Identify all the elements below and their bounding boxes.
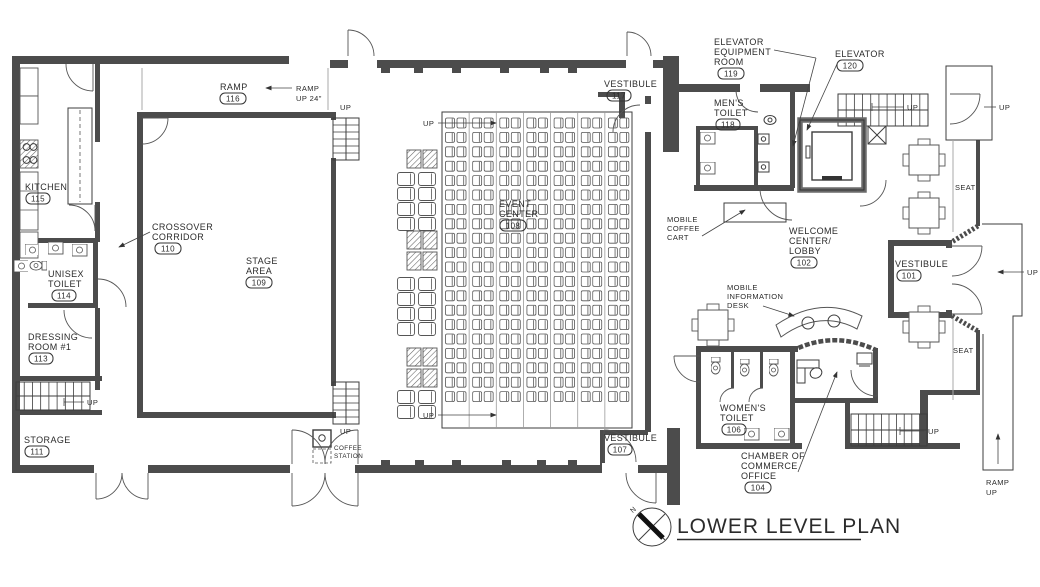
room-label-stage-area: STAGE AREA 109: [246, 256, 278, 288]
chair: [554, 233, 563, 243]
chair: [566, 348, 575, 358]
chair: [566, 262, 575, 272]
chair: [500, 233, 509, 243]
svg-text:CENTER/: CENTER/: [789, 236, 831, 246]
chair: [581, 320, 590, 330]
chair: [538, 363, 547, 373]
svg-text:UP: UP: [986, 488, 997, 497]
accessible-seat: [407, 252, 421, 270]
chair: [484, 348, 493, 358]
chair: [620, 276, 629, 286]
chair: [620, 305, 629, 315]
svg-text:DESK: DESK: [727, 301, 749, 310]
chair: [538, 248, 547, 258]
chair: [446, 320, 455, 330]
chair: [554, 147, 563, 157]
chair: [527, 320, 536, 330]
pilaster: [381, 68, 390, 73]
chair: [500, 147, 509, 157]
svg-text:STATION: STATION: [334, 453, 363, 460]
chair: [554, 262, 563, 272]
elevator-shaft: [800, 120, 886, 190]
up-label: UP: [907, 103, 918, 112]
chair: [566, 190, 575, 200]
chair: [511, 118, 520, 128]
chair: [500, 348, 509, 358]
chair: [457, 132, 466, 142]
chair: [446, 233, 455, 243]
svg-text:101: 101: [902, 272, 917, 281]
chair: [538, 392, 547, 402]
chair: [608, 334, 617, 344]
plan-title: LOWER LEVEL PLAN: [677, 515, 901, 538]
chair: [554, 219, 563, 229]
chair: [446, 377, 455, 387]
chair: [500, 276, 509, 286]
chair: [608, 132, 617, 142]
chair: [527, 363, 536, 373]
chair: [566, 334, 575, 344]
up-label: UP: [423, 119, 434, 128]
chair: [500, 320, 509, 330]
chair: [527, 291, 536, 301]
accessible-seat: [407, 369, 421, 387]
chair: [554, 118, 563, 128]
svg-text:ELEVATOR: ELEVATOR: [714, 37, 764, 47]
chair: [538, 320, 547, 330]
chair: [538, 305, 547, 315]
kitchen-counter: [20, 68, 38, 96]
chair: [581, 334, 590, 344]
chair: [608, 233, 617, 243]
armchair: [398, 188, 415, 201]
room-label-ramp: RAMP 116: [220, 82, 248, 104]
svg-text:EQUIPMENT: EQUIPMENT: [714, 47, 771, 57]
chair: [608, 305, 617, 315]
chair: [554, 161, 563, 171]
chair: [581, 233, 590, 243]
room-label-chamber-office: CHAMBER OF COMMERCE OFFICE 104: [741, 451, 805, 493]
chair: [457, 147, 466, 157]
chair: [511, 334, 520, 344]
chair: [593, 320, 602, 330]
seat-label: SEAT: [953, 346, 974, 355]
svg-text:TOILET: TOILET: [720, 413, 754, 423]
chair: [608, 276, 617, 286]
chair: [484, 377, 493, 387]
mobile-coffee-cart-label: MOBILE COFFEE CART: [667, 215, 700, 242]
svg-text:EVENT: EVENT: [499, 199, 531, 209]
chair: [581, 291, 590, 301]
armchair: [419, 323, 436, 336]
chair: [457, 176, 466, 186]
chair: [511, 392, 520, 402]
chair: [554, 334, 563, 344]
chair: [527, 176, 536, 186]
armchair: [419, 218, 436, 231]
chair: [554, 348, 563, 358]
chair: [608, 219, 617, 229]
chair: [593, 262, 602, 272]
chair: [527, 233, 536, 243]
up-label: UP: [999, 103, 1010, 112]
chair: [446, 262, 455, 272]
chair: [473, 161, 482, 171]
chair: [500, 176, 509, 186]
unisex-toilet-fixture: [30, 261, 47, 270]
chair: [566, 204, 575, 214]
chair: [457, 248, 466, 258]
room-label-welcome-center: WELCOME CENTER/ LOBBY 102: [789, 226, 838, 268]
svg-text:TOILET: TOILET: [714, 108, 748, 118]
chair: [581, 248, 590, 258]
chair: [593, 161, 602, 171]
doors: [64, 30, 982, 506]
svg-text:120: 120: [843, 62, 858, 71]
chair: [527, 392, 536, 402]
chair: [527, 334, 536, 344]
chair: [581, 377, 590, 387]
chair: [620, 190, 629, 200]
chair: [500, 392, 509, 402]
up-label: UP: [423, 411, 434, 420]
chair: [620, 118, 629, 128]
chair: [511, 132, 520, 142]
armchair: [398, 406, 415, 419]
chair: [500, 305, 509, 315]
svg-text:MOBILE: MOBILE: [667, 215, 698, 224]
up-label: UP: [1027, 268, 1038, 277]
chair: [593, 305, 602, 315]
chair: [608, 176, 617, 186]
coffee-station-fixture: [313, 430, 331, 463]
chair: [473, 334, 482, 344]
room-label-storage: STORAGE 111: [24, 435, 71, 457]
svg-text:COFFEE: COFFEE: [667, 224, 700, 233]
elevator-cab: [812, 132, 852, 180]
chair: [608, 204, 617, 214]
chair: [484, 132, 493, 142]
chair: [608, 320, 617, 330]
svg-text:104: 104: [751, 484, 766, 493]
svg-text:VESTIBULE: VESTIBULE: [604, 79, 657, 89]
up-label: UP: [340, 103, 351, 112]
svg-text:RAMP: RAMP: [220, 82, 248, 92]
accessible-seat: [407, 231, 421, 249]
chair: [457, 363, 466, 373]
chair: [511, 291, 520, 301]
floor-plan-page: RAMP 116 RAMP UP 24" KITCHEN 115 CROSSOV…: [0, 0, 1040, 587]
chair: [608, 348, 617, 358]
chair: [457, 334, 466, 344]
chair: [446, 248, 455, 258]
chair: [511, 161, 520, 171]
chair: [527, 377, 536, 387]
chair: [473, 305, 482, 315]
chair: [446, 291, 455, 301]
north-letter: N: [629, 506, 638, 515]
svg-text:117: 117: [612, 92, 626, 101]
chair: [581, 147, 590, 157]
chair: [511, 305, 520, 315]
svg-text:KITCHEN: KITCHEN: [25, 182, 67, 192]
room-label-crossover-corridor: CROSSOVER CORRIDOR 110: [152, 222, 213, 254]
chair: [620, 377, 629, 387]
event-center-seating: [398, 112, 633, 428]
chair: [500, 291, 509, 301]
pilaster: [568, 460, 577, 465]
chair: [484, 248, 493, 258]
chair: [566, 147, 575, 157]
chair: [593, 147, 602, 157]
chair: [511, 176, 520, 186]
chair: [581, 176, 590, 186]
svg-text:VESTIBULE: VESTIBULE: [604, 433, 657, 443]
svg-text:UNISEX: UNISEX: [48, 269, 84, 279]
chair: [446, 363, 455, 373]
chair: [527, 305, 536, 315]
chair: [538, 262, 547, 272]
room-label-vestibule-101: VESTIBULE 101: [895, 259, 948, 281]
chair: [538, 176, 547, 186]
chair: [566, 320, 575, 330]
armchair: [398, 391, 415, 404]
chair: [473, 248, 482, 258]
chair: [457, 377, 466, 387]
chair: [457, 276, 466, 286]
chair: [538, 161, 547, 171]
chair: [457, 190, 466, 200]
chair: [484, 392, 493, 402]
chair: [446, 147, 455, 157]
room-label-unisex-toilet: UNISEX TOILET 114: [48, 269, 84, 301]
chair: [581, 348, 590, 358]
svg-text:CART: CART: [667, 233, 689, 242]
chair: [566, 291, 575, 301]
armchair: [398, 293, 415, 306]
chair: [473, 233, 482, 243]
chair: [620, 132, 629, 142]
chair: [457, 291, 466, 301]
chair: [473, 219, 482, 229]
chair: [500, 248, 509, 258]
svg-text:108: 108: [506, 222, 521, 231]
chair: [593, 334, 602, 344]
chair: [620, 363, 629, 373]
svg-text:116: 116: [226, 95, 240, 104]
chair: [473, 147, 482, 157]
chair: [608, 161, 617, 171]
chair: [457, 392, 466, 402]
accessible-seat: [423, 369, 437, 387]
chair: [538, 377, 547, 387]
svg-text:AREA: AREA: [246, 266, 272, 276]
chair: [473, 190, 482, 200]
chair: [538, 348, 547, 358]
chair: [500, 161, 509, 171]
chair: [620, 334, 629, 344]
chair: [446, 190, 455, 200]
chair: [484, 161, 493, 171]
svg-text:MEN'S: MEN'S: [714, 98, 744, 108]
chair: [581, 219, 590, 229]
chair: [511, 233, 520, 243]
chair: [593, 118, 602, 128]
seat-label: SEAT: [955, 183, 976, 192]
chair: [446, 204, 455, 214]
chair: [554, 176, 563, 186]
chair: [620, 348, 629, 358]
svg-text:113: 113: [34, 355, 48, 364]
chair: [566, 132, 575, 142]
chair: [608, 363, 617, 373]
chair: [620, 204, 629, 214]
chair: [620, 392, 629, 402]
svg-text:RAMP: RAMP: [296, 84, 319, 93]
svg-text:114: 114: [57, 292, 71, 301]
chair: [554, 248, 563, 258]
chair: [566, 305, 575, 315]
chair: [500, 132, 509, 142]
chair: [511, 276, 520, 286]
chair: [484, 147, 493, 157]
chair: [620, 161, 629, 171]
chair: [527, 219, 536, 229]
chair: [593, 204, 602, 214]
svg-text:MOBILE: MOBILE: [727, 283, 758, 292]
chair: [554, 392, 563, 402]
chair: [566, 176, 575, 186]
office-computer-icon: [857, 353, 872, 364]
chair: [527, 348, 536, 358]
mobile-information-desk-shape: [776, 307, 862, 337]
chair: [473, 291, 482, 301]
chair: [484, 219, 493, 229]
svg-text:111: 111: [30, 448, 44, 457]
accessible-seat: [423, 231, 437, 249]
chair: [593, 233, 602, 243]
room-label-mens-toilet: MEN'S TOILET 118: [714, 98, 748, 130]
coffee-station-label: COFFEE STATION: [334, 445, 363, 460]
chair: [554, 204, 563, 214]
chair: [538, 204, 547, 214]
svg-text:STORAGE: STORAGE: [24, 435, 71, 445]
mobile-coffee-cart-shape: [724, 203, 786, 222]
armchair: [419, 391, 436, 404]
chair: [593, 176, 602, 186]
up-label: UP: [928, 427, 939, 436]
svg-text:CENTER: CENTER: [499, 209, 539, 219]
chair: [608, 291, 617, 301]
svg-text:109: 109: [252, 279, 267, 288]
svg-text:102: 102: [797, 259, 812, 268]
mobile-information-desk-label: MOBILE INFORMATION DESK: [727, 283, 783, 310]
svg-text:DRESSING: DRESSING: [28, 332, 78, 342]
pilaster: [500, 68, 509, 73]
chair: [446, 161, 455, 171]
chair: [484, 291, 493, 301]
chair: [593, 248, 602, 258]
svg-text:TOILET: TOILET: [48, 279, 82, 289]
chair: [446, 334, 455, 344]
chair: [554, 291, 563, 301]
chair: [566, 276, 575, 286]
chair: [511, 348, 520, 358]
pilaster: [537, 460, 546, 465]
chair: [446, 132, 455, 142]
chair: [581, 132, 590, 142]
chair: [527, 118, 536, 128]
chair: [457, 219, 466, 229]
accessible-seat: [407, 150, 421, 168]
chair: [538, 291, 547, 301]
chair: [593, 276, 602, 286]
chair: [593, 363, 602, 373]
svg-text:119: 119: [724, 70, 738, 79]
chair: [538, 334, 547, 344]
svg-text:CHAMBER OF: CHAMBER OF: [741, 451, 805, 461]
chair: [457, 348, 466, 358]
svg-text:RAMP: RAMP: [986, 478, 1009, 487]
chair: [620, 176, 629, 186]
svg-text:WOMEN'S: WOMEN'S: [720, 403, 766, 413]
armchair: [398, 203, 415, 216]
chair: [484, 233, 493, 243]
chair: [473, 348, 482, 358]
armchair: [419, 308, 436, 321]
chair: [620, 320, 629, 330]
chair: [566, 233, 575, 243]
chair: [500, 118, 509, 128]
chair: [511, 262, 520, 272]
chair: [457, 204, 466, 214]
chair: [581, 276, 590, 286]
chair: [446, 392, 455, 402]
svg-text:VESTIBULE: VESTIBULE: [895, 259, 948, 269]
accessible-seat: [423, 252, 437, 270]
chair: [566, 248, 575, 258]
chair: [484, 334, 493, 344]
chair: [593, 132, 602, 142]
chair: [538, 276, 547, 286]
chair: [500, 334, 509, 344]
chair: [581, 204, 590, 214]
chair: [554, 363, 563, 373]
chair: [608, 262, 617, 272]
chair: [446, 348, 455, 358]
chair: [500, 363, 509, 373]
chair: [538, 147, 547, 157]
svg-text:ELEVATOR: ELEVATOR: [835, 49, 885, 59]
svg-text:110: 110: [161, 245, 175, 254]
chair: [581, 262, 590, 272]
armchair: [398, 323, 415, 336]
chair: [473, 276, 482, 286]
chair: [593, 392, 602, 402]
chair: [566, 118, 575, 128]
svg-text:118: 118: [721, 121, 735, 130]
armchair: [419, 173, 436, 186]
chair: [608, 392, 617, 402]
chair: [473, 392, 482, 402]
chair: [511, 248, 520, 258]
accessible-seat: [407, 348, 421, 366]
chair: [593, 190, 602, 200]
chair: [484, 262, 493, 272]
chair: [554, 190, 563, 200]
chair: [484, 363, 493, 373]
chair: [581, 161, 590, 171]
